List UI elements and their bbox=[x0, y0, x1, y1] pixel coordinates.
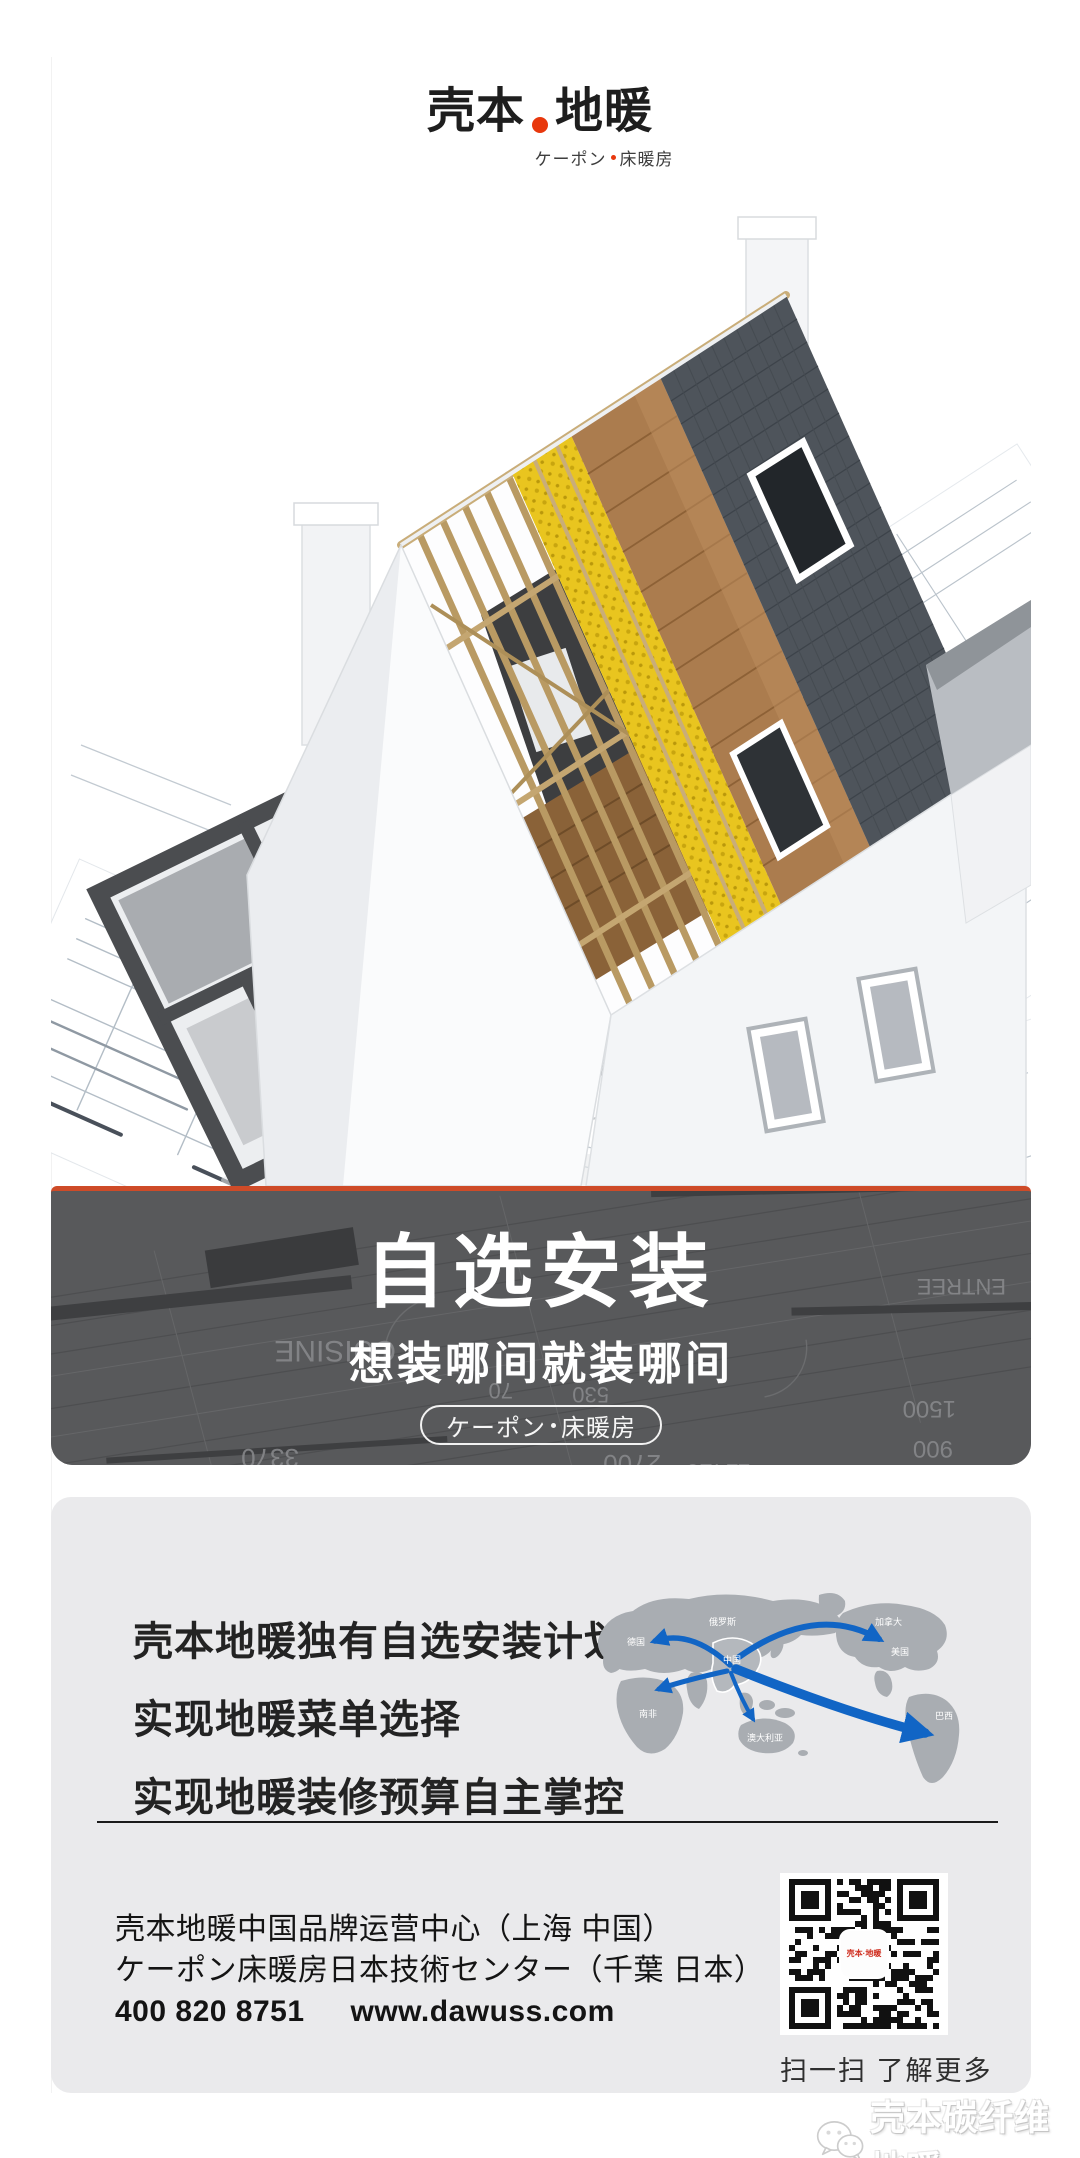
contact-block: 壳本地暖中国品牌运营中心（上海 中国） ケーポン床暖房日本技術センター（千葉 日… bbox=[115, 1909, 764, 2032]
map-label-canada: 加拿大 bbox=[875, 1616, 902, 1627]
map-label-russia: 俄罗斯 bbox=[709, 1616, 736, 1627]
info-card: 壳本地暖独有自选安装计划， 实现地暖菜单选择 实现地暖装修预算自主掌控 bbox=[51, 1497, 1031, 2093]
brand-logo-subtitle: ケーポン 床暖房 bbox=[535, 145, 674, 170]
divider-line bbox=[97, 1821, 998, 1823]
slogan-line-2: 实现地暖菜单选择 bbox=[133, 1681, 666, 1759]
brand-logo-title: 壳本 地暖 bbox=[427, 88, 653, 136]
map-label-usa: 美国 bbox=[891, 1646, 909, 1657]
slogan-line-3: 实现地暖装修预算自主掌控 bbox=[133, 1759, 666, 1837]
qr-center-logo: 壳本·地暖 bbox=[841, 1931, 887, 1977]
contact-phone: 400 820 8751 bbox=[115, 1991, 305, 2032]
badge-dot-icon bbox=[551, 1423, 556, 1428]
map-label-brazil: 巴西 bbox=[935, 1711, 953, 1721]
brand-subtitle-dot-icon bbox=[611, 155, 616, 160]
banner-brand-badge: ケーポン 床暖房 bbox=[420, 1405, 662, 1445]
wechat-icon bbox=[816, 2115, 864, 2158]
contact-line-china: 壳本地暖中国品牌运营中心（上海 中国） bbox=[115, 1909, 764, 1950]
banner-bp-num-1500: 1500 bbox=[903, 1395, 956, 1422]
brand-subtitle-left: ケーポン bbox=[535, 145, 607, 170]
brand-logo: 壳本 地暖 ケーポン 床暖房 bbox=[0, 88, 1080, 170]
banner-bp-num-2700: 2700 bbox=[603, 1449, 661, 1465]
watermark-text: 壳本碳纤维地暖 bbox=[870, 2090, 1080, 2158]
brand-name-right: 地暖 bbox=[555, 88, 653, 136]
slogan-line-1: 壳本地暖独有自选安装计划， bbox=[133, 1603, 666, 1681]
banner-bp-num-900: 900 bbox=[913, 1435, 953, 1462]
qr-caption: 扫一扫 了解更多 bbox=[780, 2049, 993, 2088]
headline-banner: CUISINE ENTREE 3370 2700 11420 1500 900 … bbox=[51, 1186, 1031, 1465]
badge-right: 床暖房 bbox=[561, 1408, 636, 1443]
brand-dot-icon bbox=[532, 117, 548, 133]
slogan-block: 壳本地暖独有自选安装计划， 实现地暖菜单选择 实现地暖装修预算自主掌控 bbox=[133, 1603, 666, 1837]
map-label-australia: 澳大利亚 bbox=[747, 1732, 783, 1743]
badge-left: ケーポン bbox=[446, 1408, 546, 1443]
poster-page: 壳本 地暖 ケーポン 床暖房 bbox=[0, 0, 1080, 2158]
world-map-graphic: 俄罗斯 德国 中国 加拿大 美国 南非 澳大利亚 巴西 bbox=[591, 1585, 1031, 1825]
brand-subtitle-right: 床暖房 bbox=[620, 145, 674, 170]
house-blueprint-render: TOILET bbox=[51, 185, 1031, 1186]
banner-bp-num-11420: 11420 bbox=[686, 1458, 751, 1465]
banner-bp-num-3370: 3370 bbox=[241, 1443, 299, 1465]
banner-subtitle: 想装哪间就装哪间 bbox=[51, 1341, 1031, 1386]
map-label-germany: 德国 bbox=[627, 1636, 645, 1647]
qr-code-box: 壳本·地暖 bbox=[780, 1873, 948, 2035]
banner-title: 自选安装 bbox=[51, 1233, 1031, 1313]
contact-line-japan: ケーポン床暖房日本技術センター（千葉 日本） bbox=[115, 1950, 764, 1991]
map-label-south-africa: 南非 bbox=[639, 1708, 657, 1719]
world-map: 俄罗斯 德国 中国 加拿大 美国 南非 澳大利亚 巴西 bbox=[591, 1585, 1031, 1825]
map-label-china: 中国 bbox=[723, 1654, 741, 1665]
brand-name-left: 壳本 bbox=[427, 88, 525, 136]
wechat-watermark: 壳本碳纤维地暖 bbox=[816, 2090, 1080, 2158]
hero-illustration: TOILET bbox=[51, 185, 1031, 1186]
contact-website: www.dawuss.com bbox=[351, 1991, 615, 2032]
